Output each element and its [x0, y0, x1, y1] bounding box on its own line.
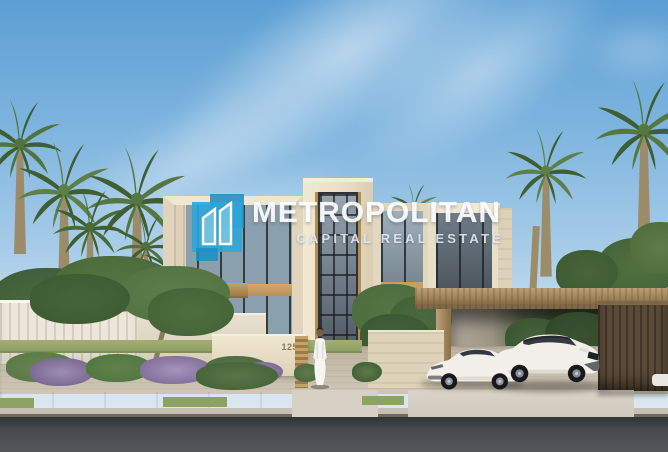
watermark: METROPOLITAN CAPITAL REAL ESTATE — [186, 192, 516, 268]
resident-figure — [306, 324, 334, 392]
foliage — [630, 222, 668, 274]
brand-name: METROPOLITAN — [252, 198, 512, 228]
brand-logo-icon — [186, 194, 250, 266]
suv-car — [492, 324, 606, 388]
grass-patch — [0, 398, 34, 408]
wall-shadow — [598, 388, 668, 396]
grass-patch — [163, 397, 227, 407]
brand-text-block: METROPOLITAN CAPITAL REAL ESTATE — [252, 198, 504, 246]
road — [0, 417, 668, 452]
brand-tagline: CAPITAL REAL ESTATE — [252, 231, 504, 246]
parked-car-glimpse — [652, 374, 668, 386]
villa-exterior-render: 125 — [0, 0, 668, 452]
grass-patch — [362, 396, 404, 405]
